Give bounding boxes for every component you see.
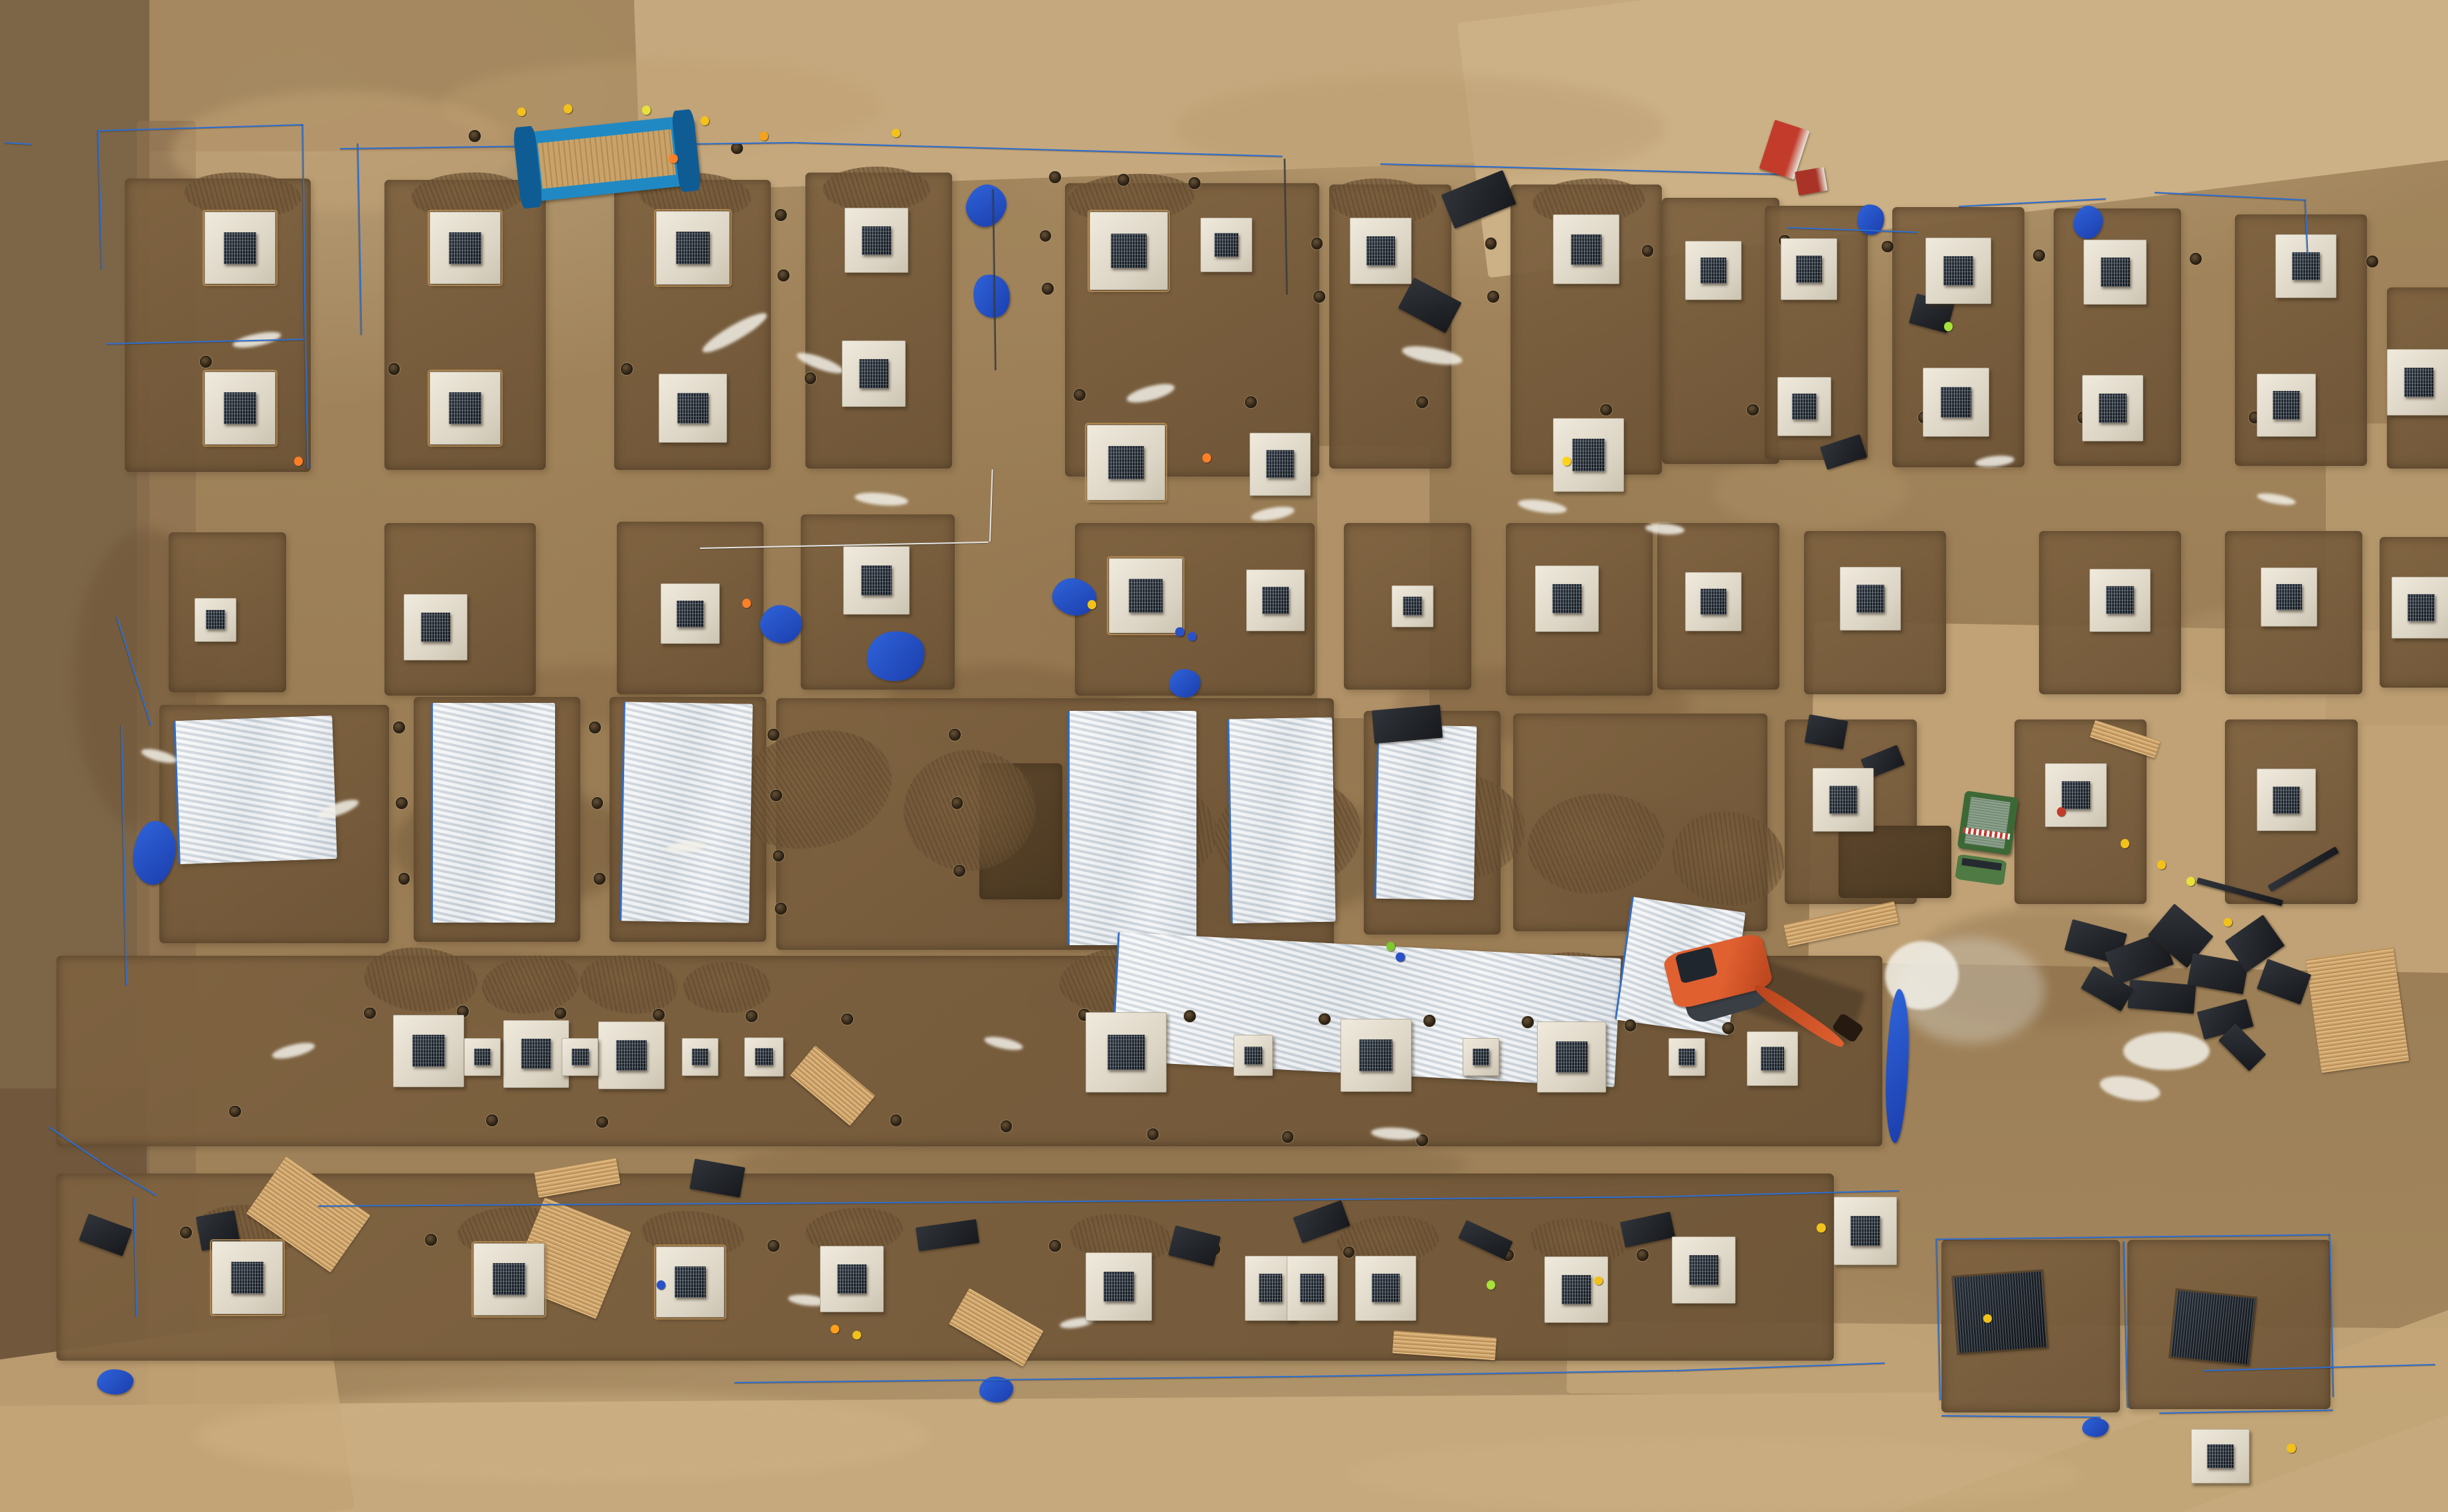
foundation-pad bbox=[1090, 212, 1168, 290]
rebar-cage bbox=[474, 1049, 491, 1065]
rebar-cage bbox=[861, 566, 892, 595]
rebar-cage bbox=[412, 1035, 445, 1067]
insulation-cover bbox=[431, 703, 555, 922]
foundation-pad bbox=[1923, 368, 1989, 437]
foundation-pad bbox=[1672, 1237, 1736, 1303]
rebar-cage bbox=[1107, 1035, 1145, 1070]
pile-hole bbox=[1042, 283, 1054, 295]
pile-hole bbox=[1319, 1014, 1331, 1025]
insulation-cover bbox=[1227, 718, 1335, 923]
rebar-cage bbox=[1108, 446, 1144, 479]
foundation-pad bbox=[2387, 349, 2448, 416]
pile-hole bbox=[1049, 1240, 1061, 1252]
worker bbox=[760, 131, 768, 141]
foundation-pad bbox=[661, 583, 719, 644]
pile-hole bbox=[1625, 1020, 1637, 1031]
dirt-patch bbox=[1714, 453, 1910, 529]
foundation-pad bbox=[843, 546, 910, 615]
foundation-pad bbox=[656, 211, 730, 285]
pile-hole bbox=[592, 797, 604, 809]
insulation-cover bbox=[620, 702, 753, 924]
worker bbox=[2224, 918, 2232, 927]
rebar-cage bbox=[1700, 589, 1726, 615]
rebar-cage bbox=[1571, 234, 1601, 265]
blue-tarp bbox=[968, 270, 1015, 322]
pile-hole bbox=[364, 1008, 376, 1020]
rebar-cage bbox=[521, 1039, 552, 1069]
rebar-cage bbox=[676, 232, 710, 264]
foundation-pad bbox=[1840, 567, 1901, 631]
pile-hole bbox=[1424, 1015, 1435, 1027]
pile-hole bbox=[589, 721, 601, 733]
excavated-plot bbox=[1838, 826, 1951, 898]
dirt-mound bbox=[823, 167, 930, 212]
rebar-cage bbox=[572, 1049, 588, 1065]
foundation-pad bbox=[1781, 238, 1837, 300]
rebar-cage bbox=[1262, 587, 1289, 614]
rebar-cage bbox=[2276, 584, 2302, 610]
worker bbox=[1386, 942, 1395, 951]
rebar-cage bbox=[1562, 1275, 1591, 1304]
dirt-patch bbox=[1346, 1436, 2081, 1512]
worker bbox=[1175, 627, 1184, 637]
rebar-cage bbox=[2273, 391, 2300, 419]
barrier-line bbox=[1936, 1234, 2330, 1240]
foundation-pad bbox=[393, 1015, 464, 1087]
worker bbox=[642, 106, 651, 115]
foundation-pad bbox=[1287, 1256, 1338, 1321]
foundation-pad bbox=[2083, 240, 2147, 305]
dirt-patch bbox=[196, 1391, 930, 1482]
foundation-pad bbox=[1537, 1021, 1605, 1093]
rebar-cage bbox=[2106, 586, 2134, 614]
rebar-cage bbox=[2292, 252, 2320, 280]
foundation-pad bbox=[1246, 569, 1305, 631]
rebar-cage bbox=[449, 232, 481, 264]
foundation-pad bbox=[1355, 1256, 1416, 1321]
pile-hole bbox=[1600, 404, 1612, 416]
pile-hole bbox=[805, 372, 817, 384]
worker bbox=[1817, 1223, 1825, 1233]
foundation-pad bbox=[1109, 558, 1183, 634]
worker bbox=[564, 104, 572, 113]
pile-hole bbox=[1522, 1016, 1534, 1028]
pile-hole bbox=[949, 729, 961, 741]
rebar-cage bbox=[1792, 394, 1817, 419]
pile-hole bbox=[621, 363, 633, 375]
foundation-pad bbox=[2257, 374, 2315, 437]
worker bbox=[2157, 860, 2166, 869]
foundation-pad bbox=[2082, 375, 2143, 441]
lumber-pile bbox=[2306, 947, 2409, 1073]
rebar-cage bbox=[677, 393, 708, 423]
rebar-cage bbox=[2273, 787, 2300, 814]
pile-hole bbox=[1147, 1128, 1159, 1140]
pile-hole bbox=[1747, 404, 1759, 416]
foundation-pad bbox=[598, 1021, 665, 1090]
foundation-pad bbox=[195, 598, 236, 642]
rebar-cage bbox=[1850, 1216, 1880, 1246]
rebar-cage bbox=[1941, 387, 1971, 417]
rebar-cage bbox=[2404, 368, 2433, 397]
rebar-cage bbox=[449, 392, 481, 424]
worker bbox=[1088, 600, 1096, 609]
worker bbox=[831, 1325, 839, 1334]
rebar-cage bbox=[224, 392, 256, 424]
rebar-cage bbox=[1214, 233, 1238, 257]
rebar-cage bbox=[1856, 585, 1884, 613]
pile-hole bbox=[2033, 250, 2045, 262]
pile-hole bbox=[398, 873, 410, 885]
foundation-pad bbox=[1813, 768, 1874, 832]
foundation-pad bbox=[204, 372, 276, 444]
worker bbox=[2287, 1444, 2295, 1453]
worker bbox=[1188, 632, 1196, 641]
insulation-cover bbox=[174, 716, 337, 865]
foundation-pad bbox=[1086, 1252, 1152, 1321]
pile-hole bbox=[1485, 238, 1497, 250]
dump-truck bbox=[1950, 790, 2021, 888]
rebar-cage bbox=[859, 359, 888, 388]
pile-hole bbox=[229, 1106, 241, 1118]
foundation-pad bbox=[2261, 567, 2317, 627]
foundation-pad bbox=[1834, 1197, 1898, 1265]
foundation-pad bbox=[430, 212, 501, 284]
rebar-cage bbox=[1129, 579, 1163, 612]
foundation-pad bbox=[464, 1038, 501, 1076]
barrier-line bbox=[734, 1376, 1295, 1384]
rebar-cage bbox=[1244, 1047, 1262, 1065]
blue-tarp bbox=[757, 602, 805, 646]
pile-hole bbox=[1882, 241, 1894, 253]
concrete-splat bbox=[854, 491, 908, 507]
pile-hole bbox=[951, 797, 963, 809]
formwork-pile bbox=[1372, 705, 1443, 744]
pile-hole bbox=[841, 1014, 853, 1025]
rebar-cage bbox=[1552, 584, 1582, 613]
formwork-pile bbox=[2127, 979, 2196, 1014]
pile-hole bbox=[200, 356, 212, 368]
pile-hole bbox=[1313, 291, 1325, 303]
rebar-cage bbox=[1359, 1039, 1392, 1071]
foundation-pad bbox=[682, 1038, 718, 1076]
worker bbox=[1487, 1280, 1495, 1290]
insulation-cover bbox=[1374, 725, 1477, 901]
insulation-cover bbox=[1068, 711, 1197, 945]
foundation-pad bbox=[1544, 1256, 1608, 1323]
rebar-cage bbox=[224, 232, 256, 264]
pile-hole bbox=[731, 143, 743, 155]
foundation-pad bbox=[845, 208, 908, 273]
pile-hole bbox=[1040, 230, 1052, 242]
rebar-cage bbox=[2407, 594, 2435, 621]
pile-hole bbox=[180, 1227, 192, 1239]
rebar-cage bbox=[421, 613, 450, 642]
rebar-cage bbox=[1556, 1041, 1587, 1073]
pile-hole bbox=[1311, 238, 1323, 250]
pile-hole bbox=[596, 1116, 608, 1128]
foundation-pad bbox=[2089, 569, 2151, 633]
foundation-pad bbox=[1553, 214, 1619, 284]
barrier-line bbox=[989, 469, 993, 541]
worker bbox=[669, 154, 677, 163]
foundation-pad bbox=[1925, 238, 1992, 304]
rebar-cage bbox=[1372, 1274, 1400, 1302]
rebar-cage bbox=[1473, 1049, 1489, 1065]
foundation-pad bbox=[1350, 218, 1411, 284]
rebar-cage bbox=[1700, 258, 1726, 283]
aerial-photo-stage bbox=[0, 0, 2448, 1512]
foundation-pad bbox=[659, 374, 727, 443]
foundation-pad bbox=[2257, 769, 2315, 830]
pile-hole bbox=[393, 721, 405, 733]
pile-hole bbox=[2190, 253, 2202, 265]
foundation-pad bbox=[1777, 377, 1831, 436]
rebar-cage bbox=[2207, 1444, 2234, 1468]
pile-hole bbox=[2366, 256, 2378, 267]
foundation-pad bbox=[2191, 1429, 2249, 1483]
foundation-pad bbox=[842, 340, 906, 407]
pile-hole bbox=[770, 790, 782, 802]
foundation-pad bbox=[1087, 425, 1165, 500]
concrete-splat bbox=[2123, 1032, 2209, 1070]
rebar-cage bbox=[2099, 394, 2127, 423]
foundation-pad bbox=[1086, 1012, 1167, 1093]
foundation-pad bbox=[1685, 572, 1742, 631]
foundation-pad bbox=[404, 594, 467, 660]
foundation-pad bbox=[1535, 566, 1599, 632]
worker bbox=[2121, 839, 2129, 848]
concrete-splat bbox=[1250, 504, 1296, 524]
pile-hole bbox=[1074, 389, 1086, 401]
worker bbox=[1396, 952, 1404, 962]
pile-hole bbox=[653, 1009, 665, 1021]
rebar-cage bbox=[2101, 258, 2130, 286]
foundation-pad bbox=[820, 1246, 884, 1312]
pile-hole bbox=[486, 1114, 498, 1126]
rebar-cage bbox=[837, 1264, 866, 1294]
worker bbox=[1562, 457, 1571, 466]
worker bbox=[742, 599, 751, 608]
blue-tarp bbox=[961, 179, 1012, 232]
rebar-cage bbox=[1796, 256, 1822, 283]
rebar-cage bbox=[231, 1262, 264, 1294]
rebar-cage-pit bbox=[1953, 1272, 2046, 1353]
rebar-cage bbox=[1103, 1272, 1134, 1302]
truck-bed-cover bbox=[1965, 797, 2010, 850]
rebar-cage bbox=[1403, 597, 1422, 615]
pile-hole bbox=[768, 729, 779, 741]
pile-hole bbox=[1487, 291, 1499, 303]
pile-hole bbox=[1184, 1010, 1196, 1022]
rebar-cage bbox=[1943, 256, 1974, 285]
foundation-pad bbox=[503, 1020, 570, 1089]
rebar-cage bbox=[1259, 1274, 1283, 1302]
barrier-line bbox=[2154, 192, 2306, 201]
rebar-cage bbox=[1111, 234, 1147, 268]
concrete-splat bbox=[2097, 1072, 2162, 1105]
worker bbox=[2057, 807, 2066, 816]
pile-hole bbox=[396, 797, 408, 809]
pile-hole bbox=[1188, 177, 1200, 189]
rebar-cage bbox=[862, 226, 891, 255]
pile-hole bbox=[425, 1234, 437, 1246]
foundation-pad bbox=[212, 1241, 283, 1314]
foundation-pad bbox=[656, 1247, 724, 1318]
pile-hole bbox=[777, 269, 789, 281]
pile-hole bbox=[775, 209, 787, 221]
foundation-pad bbox=[1392, 585, 1433, 628]
blue-tarp bbox=[1884, 988, 1911, 1143]
foundation-pad bbox=[562, 1038, 598, 1076]
foundation-pad bbox=[204, 212, 276, 284]
rebar-cage bbox=[1572, 439, 1605, 471]
rebar-cage bbox=[692, 1049, 708, 1065]
rebar-cage bbox=[2062, 781, 2089, 809]
excavated-plot bbox=[1662, 198, 1779, 464]
rebar-cage bbox=[1300, 1274, 1324, 1302]
foundation-pad bbox=[1685, 241, 1742, 300]
pile-hole bbox=[1637, 1249, 1649, 1261]
foundation-pad bbox=[2045, 763, 2106, 827]
foundation-pad bbox=[1553, 418, 1624, 492]
pile-hole bbox=[594, 873, 606, 885]
rebar-cage bbox=[616, 1040, 647, 1070]
rebar-cage bbox=[675, 1266, 706, 1298]
rebar-cage bbox=[1689, 1255, 1718, 1284]
foundation-pad bbox=[1463, 1038, 1499, 1076]
dirt-mound bbox=[683, 962, 772, 1013]
foundation-pad bbox=[1234, 1035, 1273, 1076]
pile-hole bbox=[768, 1240, 779, 1252]
foundation-pad bbox=[2392, 577, 2448, 639]
foundation-pad bbox=[1200, 218, 1252, 272]
rebar-cage bbox=[677, 601, 704, 627]
rebar-cage bbox=[206, 610, 225, 629]
pile-hole bbox=[1245, 396, 1257, 408]
rebar-cage bbox=[1366, 236, 1394, 265]
rebar-cage bbox=[493, 1263, 525, 1295]
excavator bbox=[1667, 931, 1888, 1052]
pile-hole bbox=[1416, 396, 1428, 408]
foundation-pad bbox=[430, 372, 501, 444]
pile-hole bbox=[746, 1010, 758, 1022]
rebar-cage bbox=[755, 1048, 773, 1065]
foundation-pad bbox=[744, 1037, 783, 1077]
concrete-splat bbox=[1517, 497, 1568, 516]
foundation-pad bbox=[1250, 433, 1311, 496]
foundation-pad bbox=[1341, 1019, 1412, 1091]
worker bbox=[294, 457, 303, 466]
rebar-cage bbox=[1829, 786, 1857, 814]
foundation-pad bbox=[473, 1243, 544, 1316]
rebar-cage-pit bbox=[2170, 1290, 2255, 1365]
pile-hole bbox=[1049, 171, 1061, 183]
rebar-cage bbox=[1266, 450, 1294, 478]
concrete-splat bbox=[2257, 491, 2297, 507]
